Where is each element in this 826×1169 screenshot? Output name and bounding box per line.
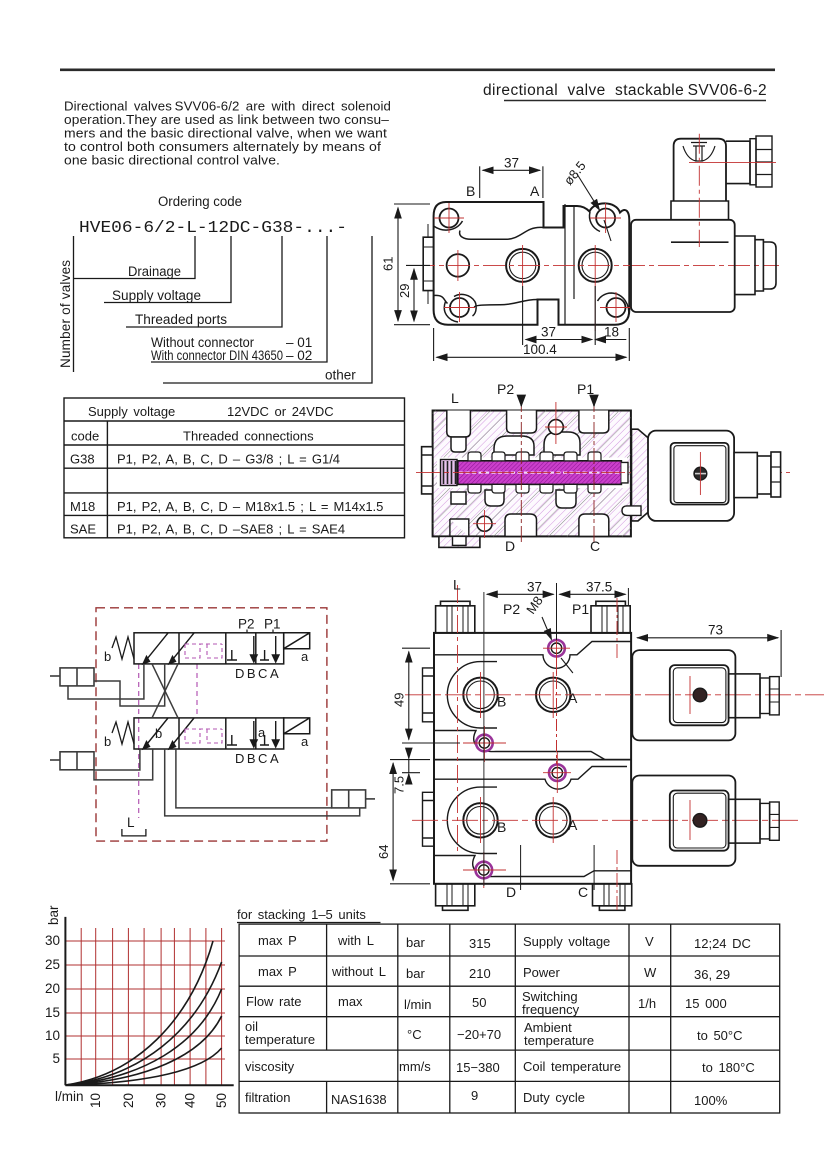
svg-text:viscosity: viscosity xyxy=(245,1059,295,1074)
svg-text:15: 15 xyxy=(45,1005,60,1020)
svg-text:P1, P2, A, B, C, D –SAE8 ; L =: P1, P2, A, B, C, D –SAE8 ; L = SAE4 xyxy=(117,522,345,537)
svg-text:without L: without L xyxy=(331,964,386,979)
svg-text:L: L xyxy=(127,815,135,830)
svg-text:40: 40 xyxy=(183,1093,198,1108)
svg-text:With connector DIN 43650: With connector DIN 43650 xyxy=(151,348,283,363)
svg-text:b: b xyxy=(104,649,111,664)
svg-text:Supply voltage: Supply voltage xyxy=(88,404,175,419)
svg-text:Power: Power xyxy=(523,965,561,980)
svg-text:Flow rate: Flow rate xyxy=(246,994,301,1009)
svg-text:a: a xyxy=(301,734,309,749)
svg-text:P2: P2 xyxy=(238,617,255,632)
svg-text:10: 10 xyxy=(45,1028,60,1043)
svg-text:L: L xyxy=(451,390,459,406)
svg-text:50: 50 xyxy=(472,995,486,1010)
svg-text:Coil temperature: Coil temperature xyxy=(523,1059,621,1074)
svg-text:L: L xyxy=(453,577,461,593)
svg-text:A: A xyxy=(568,690,578,706)
svg-text:210: 210 xyxy=(469,966,491,981)
svg-text:A: A xyxy=(530,183,540,199)
svg-text:P1, P2, A, B, C, D – G3/8 ; L: P1, P2, A, B, C, D – G3/8 ; L = G1/4 xyxy=(117,452,340,467)
svg-text:temperature: temperature xyxy=(245,1032,315,1047)
svg-text:P2: P2 xyxy=(503,601,520,617)
svg-text:15 000: 15 000 xyxy=(685,996,727,1011)
svg-text:HVE06-6/2-L-12DC-G38-...-: HVE06-6/2-L-12DC-G38-...- xyxy=(79,219,347,238)
svg-text:V: V xyxy=(645,934,654,949)
svg-text:P1: P1 xyxy=(577,381,594,397)
svg-text:G38: G38 xyxy=(70,452,95,467)
svg-text:A: A xyxy=(568,817,578,833)
svg-text:15−380: 15−380 xyxy=(456,1060,500,1075)
svg-text:29: 29 xyxy=(397,284,412,298)
svg-text:Duty cycle: Duty cycle xyxy=(523,1090,585,1105)
svg-text:37: 37 xyxy=(541,325,556,340)
svg-text:directional valve stackable: directional valve stackable SVV06-6-2 xyxy=(483,82,767,99)
svg-text:36, 29: 36, 29 xyxy=(694,967,730,982)
svg-text:bar: bar xyxy=(46,905,61,925)
svg-text:bar: bar xyxy=(406,935,425,950)
svg-text:10: 10 xyxy=(88,1093,103,1108)
svg-text:37: 37 xyxy=(504,156,519,171)
svg-text:temperature: temperature xyxy=(524,1033,594,1048)
svg-text:to 180°C: to 180°C xyxy=(702,1060,755,1075)
svg-text:other: other xyxy=(325,368,356,383)
svg-text:315: 315 xyxy=(469,936,491,951)
svg-text:12VDC or 24VDC: 12VDC or 24VDC xyxy=(227,404,334,419)
svg-text:C: C xyxy=(590,538,600,554)
svg-text:DBCA: DBCA xyxy=(235,751,281,766)
svg-text:frequency: frequency xyxy=(522,1002,580,1017)
svg-text:P1: P1 xyxy=(264,617,281,632)
svg-text:20: 20 xyxy=(45,981,60,996)
svg-text:1/h: 1/h xyxy=(638,996,656,1011)
svg-text:B: B xyxy=(497,819,506,835)
svg-text:B: B xyxy=(497,694,506,710)
svg-text:to 50°C: to 50°C xyxy=(697,1028,743,1043)
svg-text:SAE: SAE xyxy=(70,522,96,537)
svg-text:Ordering code: Ordering code xyxy=(158,194,242,209)
svg-text:b: b xyxy=(155,726,162,741)
svg-text:filtration: filtration xyxy=(245,1090,291,1105)
svg-text:25: 25 xyxy=(45,957,60,972)
svg-text:37.5: 37.5 xyxy=(586,580,612,595)
svg-text:D: D xyxy=(506,884,516,900)
svg-text:18: 18 xyxy=(604,325,619,340)
svg-text:9: 9 xyxy=(471,1088,478,1103)
svg-text:with L: with L xyxy=(337,933,374,948)
svg-text:12;24 DC: 12;24 DC xyxy=(694,936,751,951)
svg-text:73: 73 xyxy=(708,623,723,638)
svg-text:l/min: l/min xyxy=(404,997,431,1012)
svg-text:mm/s: mm/s xyxy=(399,1059,431,1074)
svg-text:one basic directional control: one basic directional control valve. xyxy=(64,153,280,168)
svg-text:61: 61 xyxy=(381,257,396,271)
svg-text:Threaded ports: Threaded ports xyxy=(135,312,227,327)
svg-text:P1, P2, A, B, C, D – M18x1.5 ;: P1, P2, A, B, C, D – M18x1.5 ; L = M14x1… xyxy=(117,499,383,514)
svg-text:Threaded connections: Threaded connections xyxy=(183,429,314,444)
svg-text:b: b xyxy=(104,734,111,749)
svg-text:W: W xyxy=(644,965,657,980)
svg-text:Supply voltage: Supply voltage xyxy=(112,288,201,303)
svg-text:C: C xyxy=(578,884,588,900)
svg-text:°C: °C xyxy=(407,1027,422,1042)
svg-text:– 02: – 02 xyxy=(286,348,312,363)
svg-text:P1: P1 xyxy=(572,601,589,617)
svg-text:100.4: 100.4 xyxy=(523,342,557,357)
svg-text:B: B xyxy=(466,183,475,199)
svg-text:code: code xyxy=(71,429,99,444)
svg-text:37: 37 xyxy=(527,580,542,595)
svg-text:20: 20 xyxy=(121,1093,136,1108)
svg-text:30: 30 xyxy=(45,933,60,948)
svg-text:max P: max P xyxy=(258,933,297,948)
svg-text:100%: 100% xyxy=(694,1093,728,1108)
svg-text:for stacking 1–5 units: for stacking 1–5 units xyxy=(237,907,366,922)
svg-text:49: 49 xyxy=(392,693,407,707)
svg-text:Number of valves: Number of valves xyxy=(58,260,73,368)
svg-text:5: 5 xyxy=(52,1051,60,1066)
svg-text:max P: max P xyxy=(258,964,297,979)
svg-text:bar: bar xyxy=(406,966,425,981)
svg-text:Supply voltage: Supply voltage xyxy=(523,934,610,949)
svg-text:50: 50 xyxy=(214,1093,229,1108)
svg-text:NAS1638: NAS1638 xyxy=(331,1092,387,1107)
svg-text:7.5: 7.5 xyxy=(392,776,407,794)
svg-text:30: 30 xyxy=(154,1093,169,1108)
svg-text:Drainage: Drainage xyxy=(128,264,181,279)
svg-text:a: a xyxy=(258,725,266,740)
svg-text:M18: M18 xyxy=(70,499,95,514)
svg-text:DBCA: DBCA xyxy=(235,666,281,681)
svg-text:a: a xyxy=(301,649,309,664)
svg-text:−20+70: −20+70 xyxy=(457,1027,501,1042)
svg-text:l/min: l/min xyxy=(55,1089,84,1104)
svg-text:D: D xyxy=(505,538,515,554)
svg-text:P2: P2 xyxy=(497,381,514,397)
svg-text:max: max xyxy=(338,994,363,1009)
svg-text:64: 64 xyxy=(376,845,391,859)
